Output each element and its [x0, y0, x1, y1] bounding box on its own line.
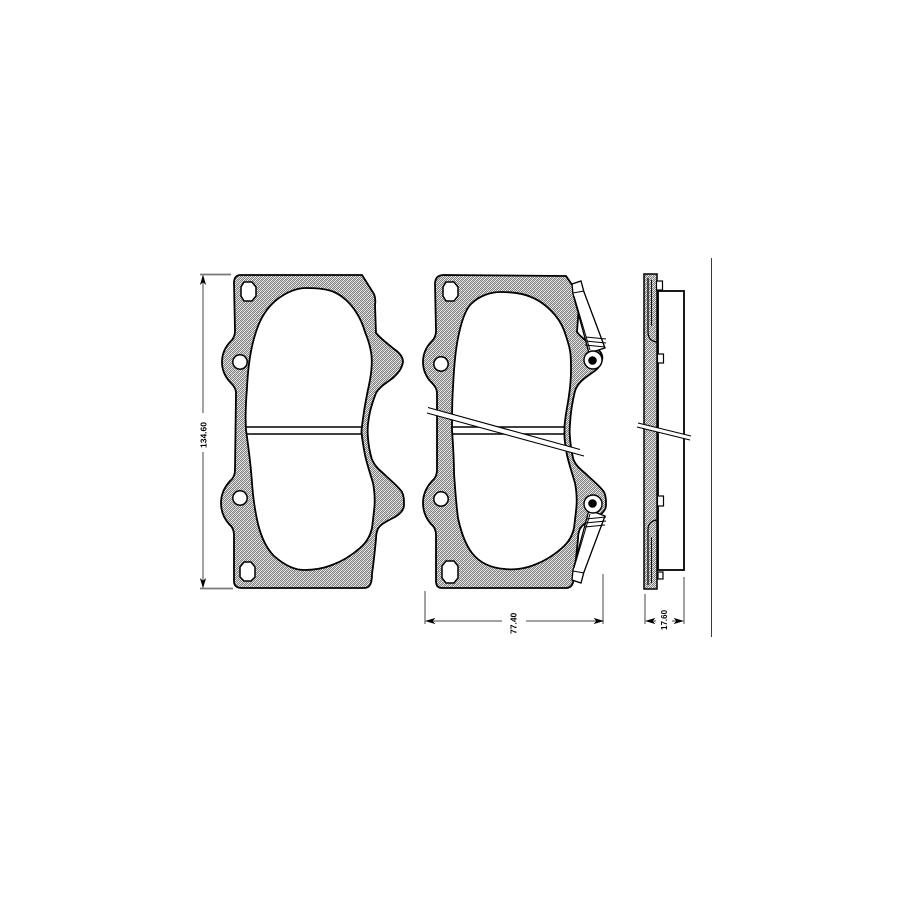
svg-text:134.60: 134.60 [199, 422, 209, 448]
svg-text:77.40: 77.40 [509, 612, 519, 634]
svg-text:17.60: 17.60 [660, 609, 669, 630]
